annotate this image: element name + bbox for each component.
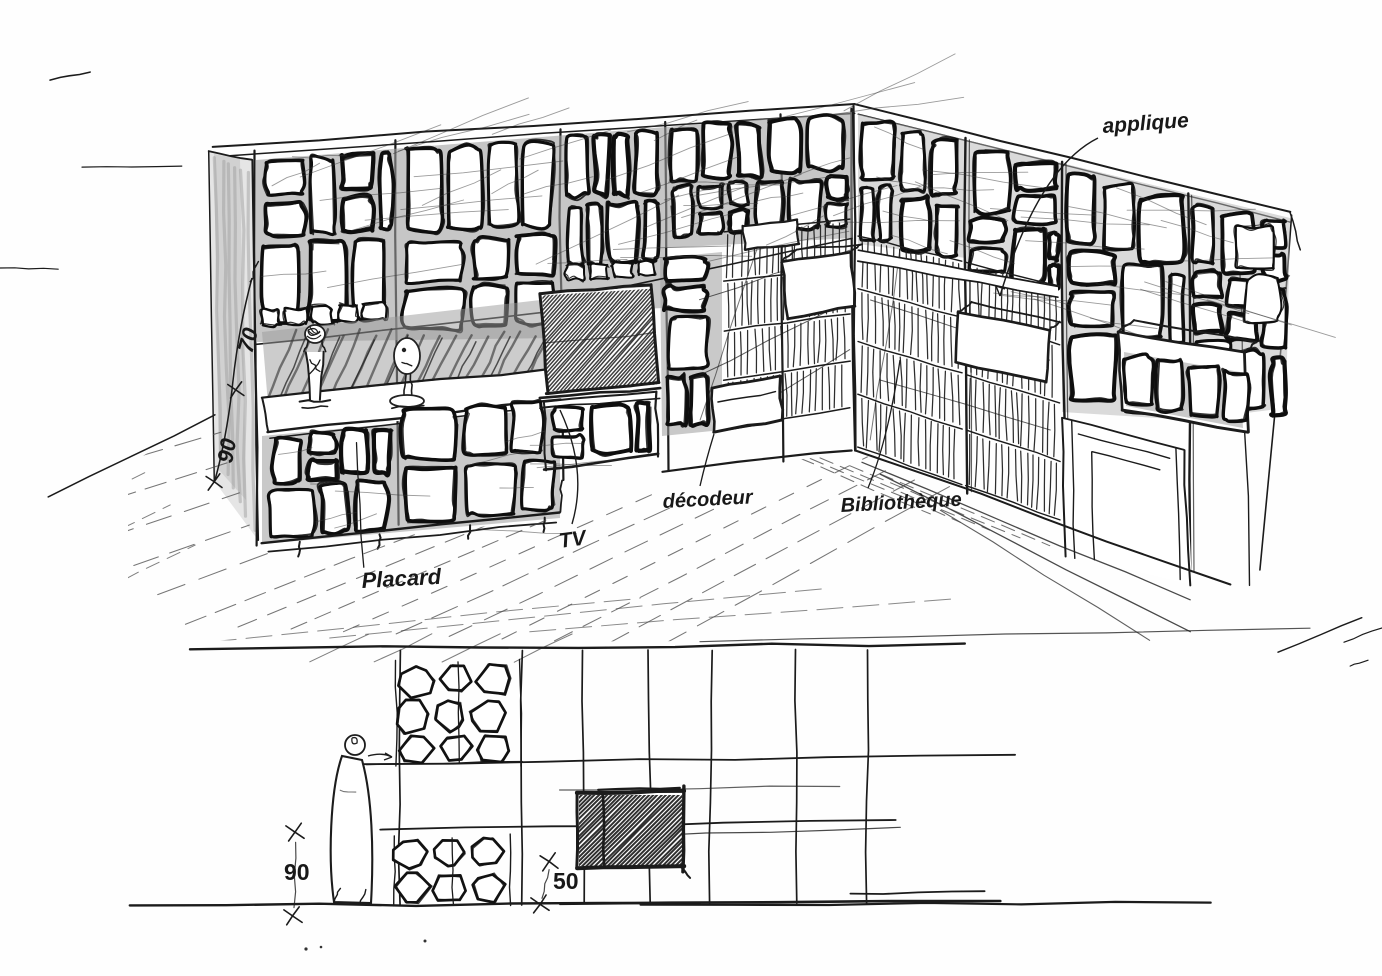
svg-text:50: 50: [553, 868, 579, 894]
svg-text:TV: TV: [557, 526, 589, 553]
svg-text:90: 90: [284, 859, 310, 885]
svg-text:90: 90: [212, 436, 241, 465]
svg-text:Placard: Placard: [361, 564, 442, 593]
